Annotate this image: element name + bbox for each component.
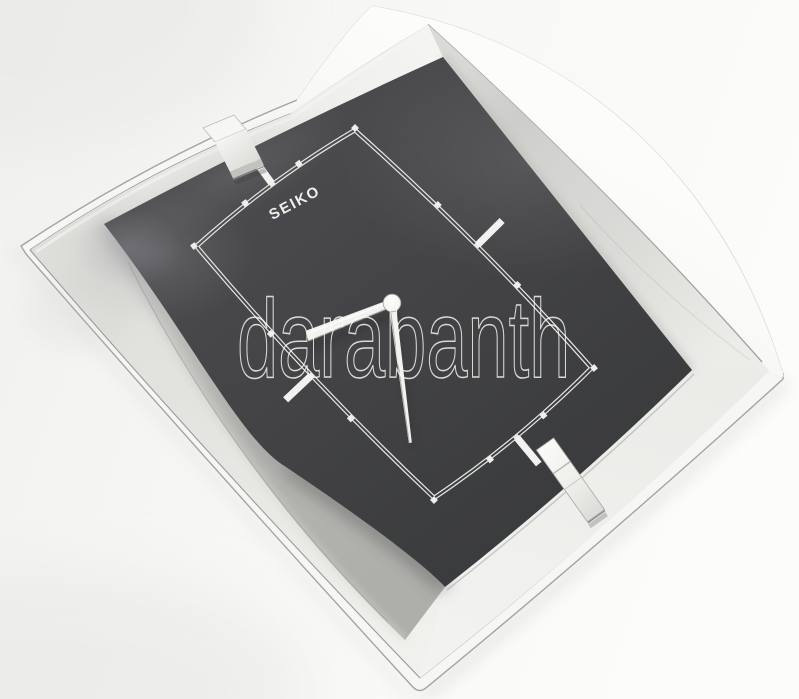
svg-text:darabanth: darabanth bbox=[237, 277, 570, 401]
